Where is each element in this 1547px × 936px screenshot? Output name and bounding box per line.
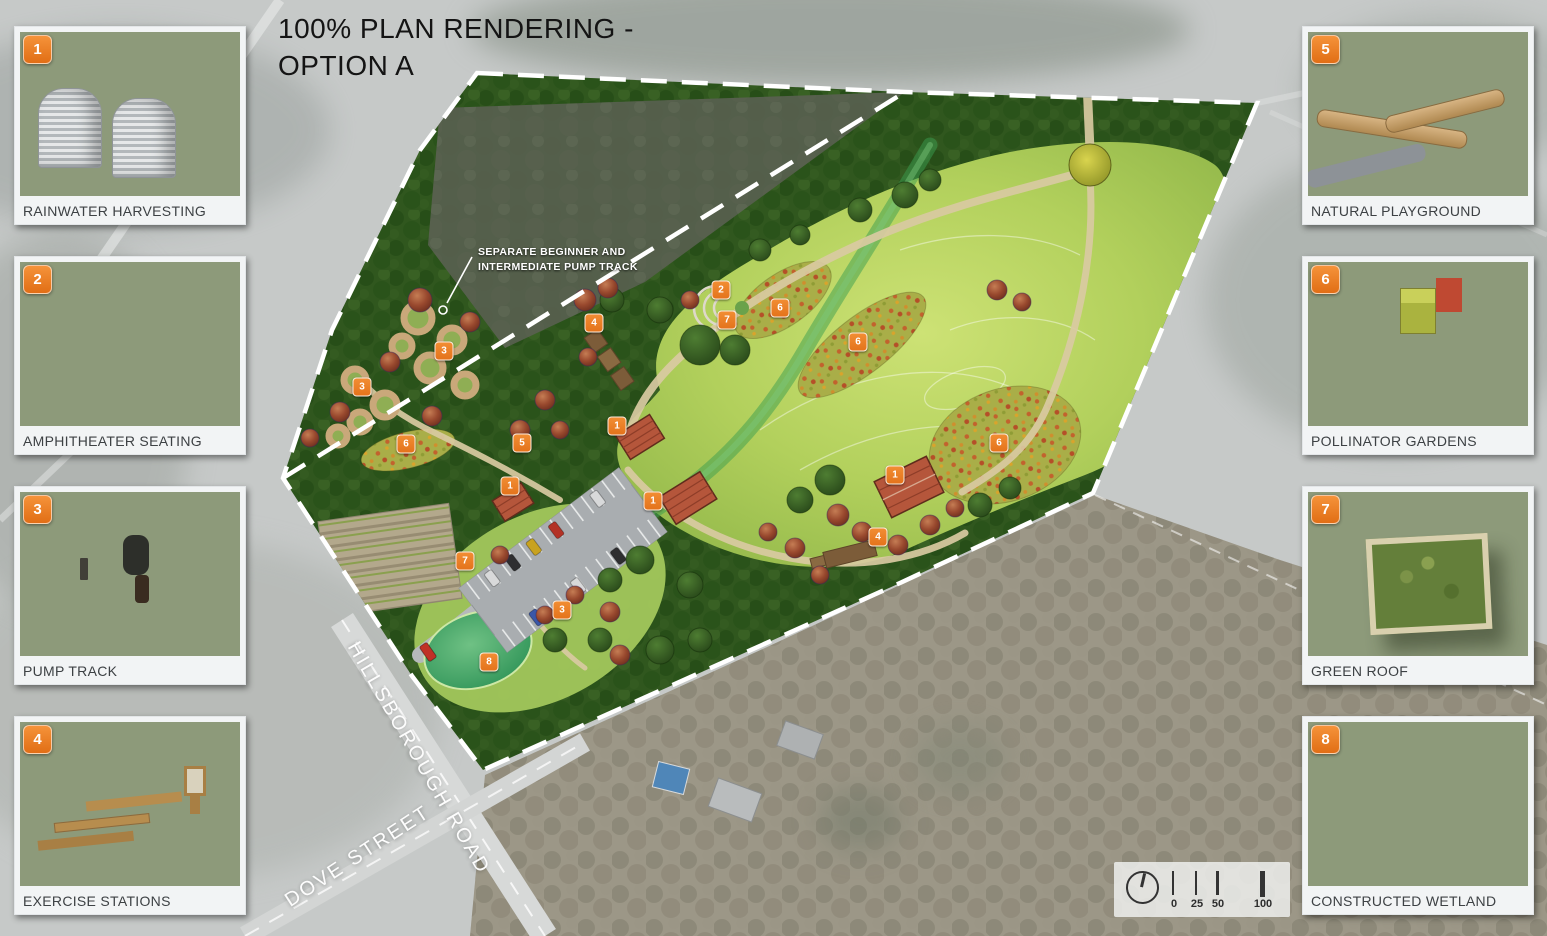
amphitheater-seating-photo <box>20 262 240 426</box>
legend-card-rainwater-harvesting: 1 RAINWATER HARVESTING <box>14 26 246 225</box>
card-caption: POLLINATOR GARDENS <box>1308 426 1528 455</box>
scale-tick <box>1172 871 1174 895</box>
card-caption: RAINWATER HARVESTING <box>20 196 240 225</box>
north-arrow-icon <box>1126 871 1159 904</box>
annotation-line2: INTERMEDIATE PUMP TRACK <box>478 260 638 275</box>
plan-marker-4: 4 <box>585 314 604 333</box>
plan-marker-3: 3 <box>553 601 572 620</box>
plan-marker-4: 4 <box>869 528 888 547</box>
plan-marker-3: 3 <box>353 378 372 397</box>
plan-marker-5: 5 <box>513 434 532 453</box>
card-number-badge: 2 <box>23 265 52 294</box>
page-title-line1: 100% PLAN RENDERING - <box>278 10 634 47</box>
plan-marker-6: 6 <box>397 435 416 454</box>
scale-bar: 0 25 50 100 <box>1114 862 1290 917</box>
scale-tick <box>1260 871 1265 897</box>
scale-label: 0 <box>1171 898 1177 910</box>
legend-card-natural-playground: 5 NATURAL PLAYGROUND <box>1302 26 1534 225</box>
legend-card-constructed-wetland: 8 CONSTRUCTED WETLAND <box>1302 716 1534 915</box>
plan-marker-6: 6 <box>771 299 790 318</box>
green-roof-photo <box>1308 492 1528 656</box>
card-number-badge: 3 <box>23 495 52 524</box>
card-caption: NATURAL PLAYGROUND <box>1308 196 1528 225</box>
rainwater-harvesting-photo <box>20 32 240 196</box>
plan-marker-1: 1 <box>608 417 627 436</box>
legend-card-pump-track: 3 PUMP TRACK <box>14 486 246 685</box>
plan-marker-8: 8 <box>480 653 499 672</box>
plan-marker-1: 1 <box>501 477 520 496</box>
card-number-badge: 5 <box>1311 35 1340 64</box>
constructed-wetland-photo <box>1308 722 1528 886</box>
page-title-line2: OPTION A <box>278 47 634 84</box>
pump-track-annotation: SEPARATE BEGINNER AND INTERMEDIATE PUMP … <box>478 245 638 275</box>
scale-tick <box>1195 871 1197 895</box>
exercise-stations-photo <box>20 722 240 886</box>
scale-label: 100 <box>1254 898 1272 910</box>
pollinator-gardens-photo <box>1308 262 1528 426</box>
scale-label: 25 <box>1191 898 1203 910</box>
card-number-badge: 7 <box>1311 495 1340 524</box>
card-number-badge: 1 <box>23 35 52 64</box>
plan-marker-7: 7 <box>456 552 475 571</box>
legend-card-exercise-stations: 4 EXERCISE STATIONS <box>14 716 246 915</box>
card-caption: CONSTRUCTED WETLAND <box>1308 886 1528 915</box>
north-arrow-needle <box>1140 873 1146 887</box>
pump-track-photo <box>20 492 240 656</box>
plan-marker-1: 1 <box>644 492 663 511</box>
annotation-line1: SEPARATE BEGINNER AND <box>478 245 638 260</box>
plan-marker-6: 6 <box>990 434 1009 453</box>
natural-playground-photo <box>1308 32 1528 196</box>
legend-card-amphitheater-seating: 2 AMPHITHEATER SEATING <box>14 256 246 455</box>
card-caption: EXERCISE STATIONS <box>20 886 240 915</box>
plan-marker-2: 2 <box>712 281 731 300</box>
card-caption: GREEN ROOF <box>1308 656 1528 685</box>
page-title: 100% PLAN RENDERING - OPTION A <box>278 10 634 84</box>
plan-board: 100% PLAN RENDERING - OPTION A SEPARATE … <box>0 0 1547 936</box>
plan-marker-3: 3 <box>435 342 454 361</box>
card-number-badge: 4 <box>23 725 52 754</box>
plan-marker-6: 6 <box>849 333 868 352</box>
card-number-badge: 6 <box>1311 265 1340 294</box>
card-number-badge: 8 <box>1311 725 1340 754</box>
card-caption: PUMP TRACK <box>20 656 240 685</box>
scale-label: 50 <box>1212 898 1224 910</box>
card-caption: AMPHITHEATER SEATING <box>20 426 240 455</box>
plan-marker-1: 1 <box>886 466 905 485</box>
scale-tick <box>1216 871 1219 895</box>
legend-card-green-roof: 7 GREEN ROOF <box>1302 486 1534 685</box>
legend-card-pollinator-gardens: 6 POLLINATOR GARDENS <box>1302 256 1534 455</box>
plan-marker-7: 7 <box>718 311 737 330</box>
